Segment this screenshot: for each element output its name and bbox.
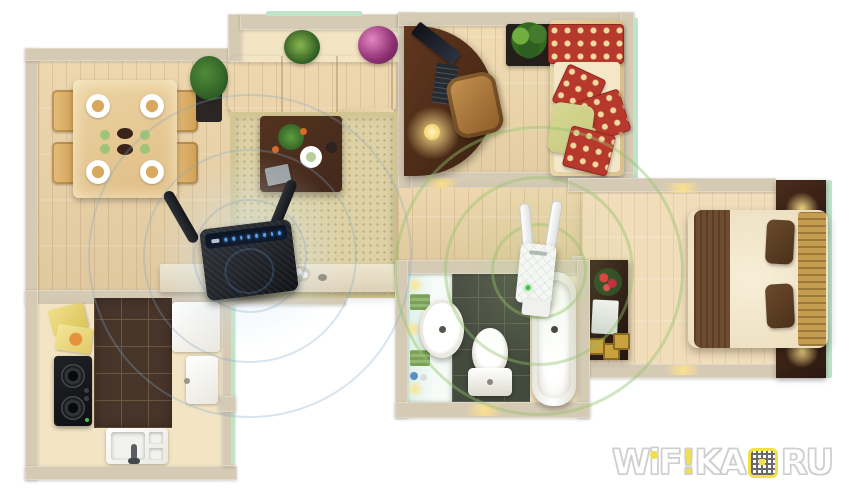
toiletry-bottle xyxy=(420,374,427,381)
router-led-panel xyxy=(205,224,288,249)
sink-drain xyxy=(439,326,446,333)
side-bowl xyxy=(100,144,110,154)
sink-basin xyxy=(149,448,163,460)
door-hinge xyxy=(184,378,190,384)
router-face-ring xyxy=(222,245,277,297)
bed-runner xyxy=(694,210,730,348)
side-bowl xyxy=(140,144,150,154)
extender-plug xyxy=(521,299,551,318)
kitchen-tile xyxy=(94,298,172,428)
desk-lamp xyxy=(424,124,440,140)
bed-pillow xyxy=(765,283,795,328)
router-led xyxy=(240,235,243,239)
wall xyxy=(25,48,38,291)
site-watermark: W i F ! KA RU xyxy=(612,446,832,481)
table-plate xyxy=(300,146,322,168)
cooktop-knob xyxy=(84,396,89,401)
wall xyxy=(568,364,776,378)
tub-drain xyxy=(551,326,558,333)
serving-dish xyxy=(117,128,133,139)
wall-accent xyxy=(266,11,362,16)
wall xyxy=(577,260,590,418)
watermark-letter: KA xyxy=(695,446,745,481)
wifi-extender xyxy=(505,195,575,325)
watermark-letter: W xyxy=(612,446,649,481)
toilet-button xyxy=(487,379,493,385)
cooktop-led xyxy=(85,418,89,422)
wall xyxy=(25,290,38,480)
side-bowl xyxy=(100,130,110,140)
table-cup xyxy=(326,142,337,153)
router-led xyxy=(263,232,266,236)
table-fruit xyxy=(272,146,279,153)
router-logo-mark xyxy=(211,238,220,243)
wifi-router xyxy=(170,168,305,308)
extender-led xyxy=(525,285,530,290)
router-body xyxy=(199,219,299,302)
sofa-sectional xyxy=(228,56,396,114)
plate xyxy=(140,160,164,184)
burner xyxy=(61,364,85,388)
kitchen-door-leaf xyxy=(186,356,218,404)
sink-basin xyxy=(111,432,145,460)
daybed-blanket xyxy=(548,24,624,64)
door-jamb xyxy=(218,396,236,412)
apartment-floorplan: W i F ! KA RU xyxy=(0,0,847,494)
plate xyxy=(140,94,164,118)
plate xyxy=(86,160,110,184)
serving-dish xyxy=(117,144,133,155)
cooktop-knob xyxy=(84,388,89,393)
wall xyxy=(25,466,237,480)
dresser-frame xyxy=(613,333,630,350)
towel xyxy=(410,350,430,366)
router-led xyxy=(255,233,258,237)
plant-foliage xyxy=(190,56,228,100)
wall-accent xyxy=(231,306,235,464)
burner xyxy=(61,396,85,420)
table-plant xyxy=(278,124,304,150)
router-led xyxy=(278,230,281,234)
headboard xyxy=(798,212,826,346)
kitchen-faucet-base xyxy=(128,458,140,464)
watermark-letter: ! xyxy=(681,446,695,481)
wall-accent xyxy=(633,18,638,184)
decor-stone xyxy=(318,274,327,281)
wall xyxy=(568,178,776,192)
watermark-letter: RU xyxy=(781,446,832,481)
dresser-flowers xyxy=(594,268,622,296)
watermark-letter: F xyxy=(659,446,681,481)
plate xyxy=(86,94,110,118)
watermark-letter: i xyxy=(649,446,659,481)
qr-code-icon xyxy=(748,448,778,478)
extender-body xyxy=(515,242,557,305)
wall xyxy=(395,260,408,418)
router-led xyxy=(224,237,227,241)
extender-logo-mark xyxy=(529,250,547,256)
kitchen-fridge xyxy=(172,302,220,352)
bed-pillow xyxy=(765,219,795,264)
dresser-magazine xyxy=(591,299,619,334)
toiletry-bottle xyxy=(410,372,418,380)
plant-foliage xyxy=(508,20,550,60)
side-bowl xyxy=(140,130,150,140)
router-led xyxy=(232,236,235,240)
food-packet xyxy=(54,324,93,355)
router-led xyxy=(247,234,250,238)
sink-basin xyxy=(149,432,163,444)
router-led xyxy=(270,231,273,235)
table-fruit xyxy=(300,128,307,135)
